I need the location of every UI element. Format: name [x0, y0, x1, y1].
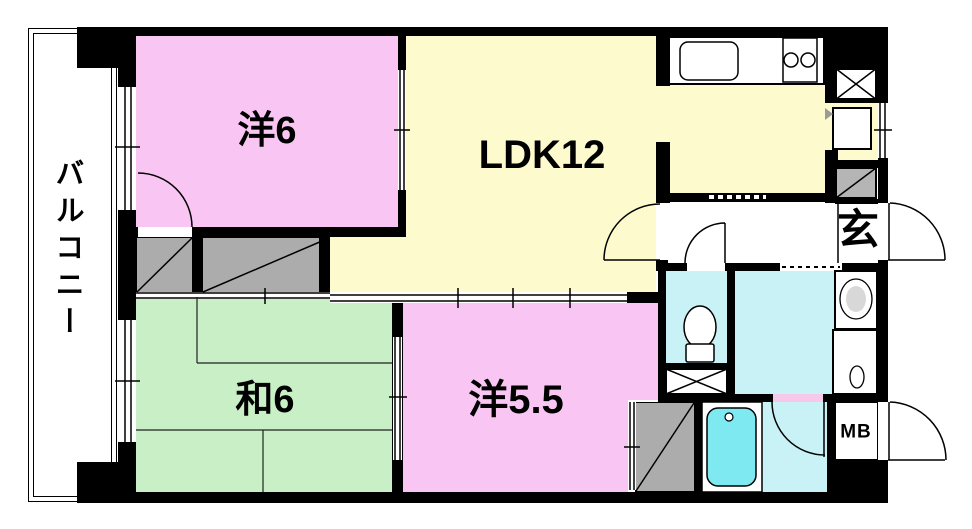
floor-plan: バルコニー 洋6 LDK12 和6 洋5.5 玄 MB [0, 0, 972, 529]
sliding-door-japanese6-western55 [393, 337, 402, 460]
wall-bath-right [827, 402, 835, 460]
wall-bottom [77, 492, 888, 503]
shoe-cabinet [835, 167, 877, 199]
wall-shoe-bottom [835, 199, 878, 204]
refrigerator-space [832, 107, 872, 150]
sliding-door-closet55 [628, 402, 636, 490]
meter-box-label: MB [840, 423, 872, 442]
window-japanese6-balcony [118, 320, 136, 442]
window-right-wall [878, 103, 888, 158]
wall-top [128, 27, 888, 36]
bathroom-floor [762, 402, 827, 492]
entrance-door-gap [878, 203, 888, 260]
toilet-room [666, 271, 727, 363]
door-gap-western6 [138, 227, 192, 237]
door-arc-meter-box [888, 402, 946, 460]
room-western-6-label: 洋6 [237, 112, 296, 150]
wall-bath-top [658, 394, 878, 402]
washroom [735, 271, 878, 394]
wall-closet-right [320, 233, 330, 297]
room-ldk-label: LDK12 [479, 135, 606, 175]
room-western-5-5-label: 洋5.5 [468, 380, 564, 420]
door-arc-entrance [888, 203, 945, 260]
room-ldk-passage [656, 86, 668, 142]
pipe-shaft-toilet [666, 369, 727, 394]
wall-toilet-left [658, 271, 666, 402]
bathroom-door-threshold [773, 394, 823, 402]
window-western6-ldk [398, 70, 406, 190]
oshiire-closet-japanese-6 [202, 237, 320, 293]
opening-washroom [780, 263, 842, 271]
wall-partition-right [627, 292, 666, 303]
wall-hall-top [668, 193, 825, 202]
room-ldk-corner [330, 237, 406, 293]
wall-toilet-right [727, 271, 735, 402]
room-ldk-kitchen-area [668, 85, 825, 193]
partition-ldk-rooms [330, 292, 627, 303]
balcony-label: バルコニー [52, 158, 81, 343]
wall-closet-divider [193, 237, 202, 298]
kitchen-counter [668, 36, 825, 85]
wall-bottom-right-block [827, 460, 888, 503]
bathroom-tub-area [702, 402, 762, 492]
fusuma-band-japanese6 [136, 292, 330, 299]
closet-western-6 [136, 237, 193, 293]
entrance-label: 玄 [837, 209, 879, 251]
room-japanese-6-label: 和6 [235, 381, 294, 419]
door-gap-toilet [687, 263, 725, 271]
wall-closet55-right [695, 402, 702, 493]
closet-western-5-5 [635, 402, 695, 492]
meter-box-door-gap [878, 402, 888, 460]
window-western6-balcony [118, 87, 136, 210]
hallway [668, 202, 838, 263]
pipe-shaft-kitchen [835, 68, 877, 100]
